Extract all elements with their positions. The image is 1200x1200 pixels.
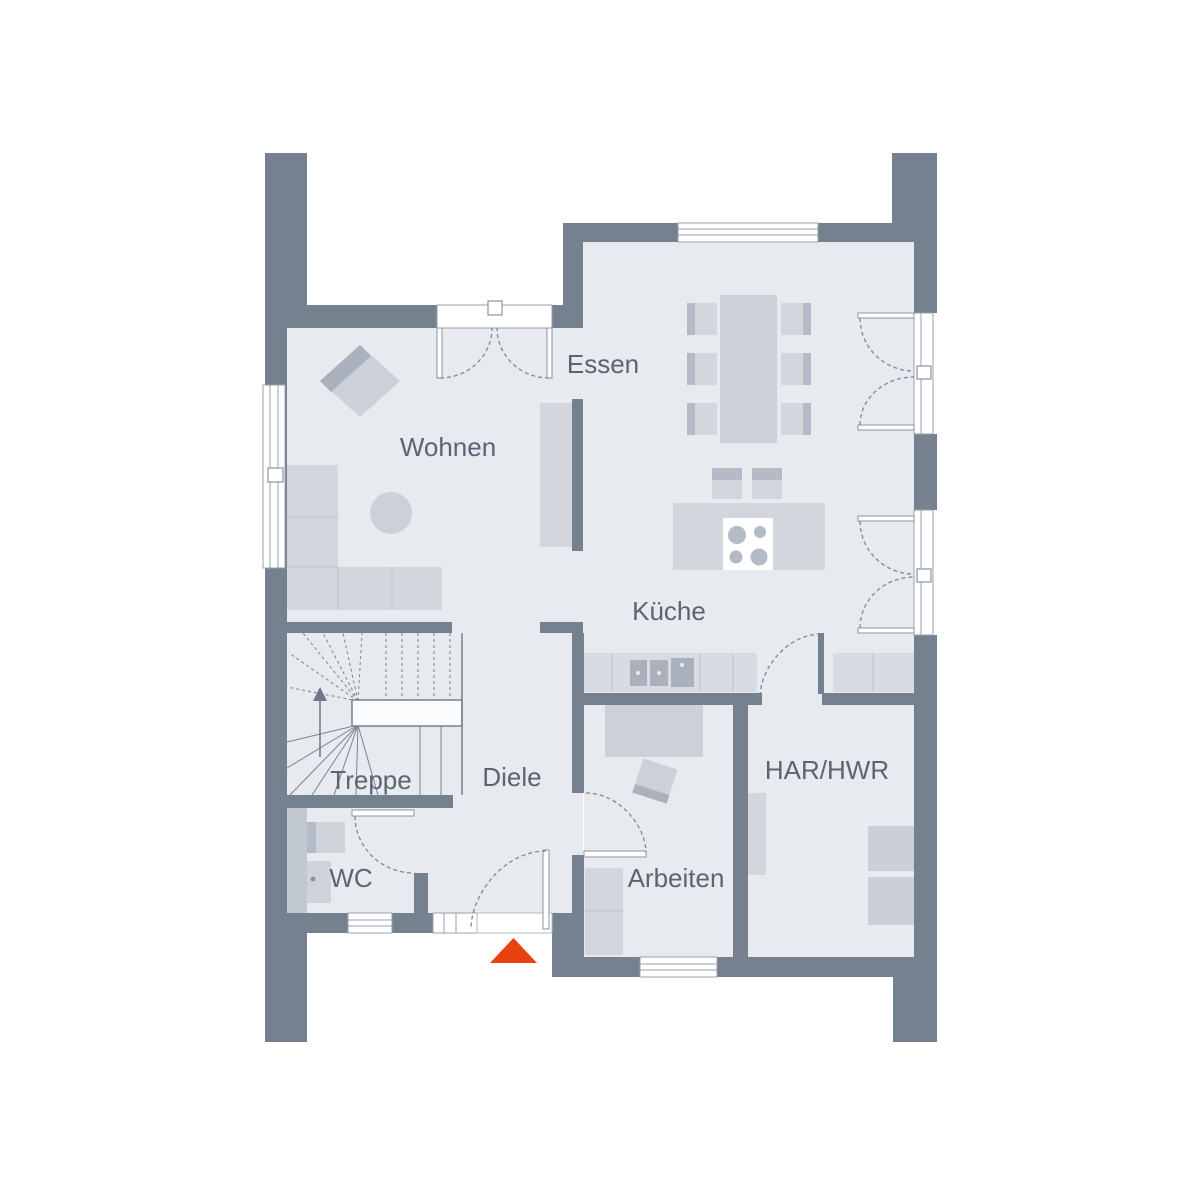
room-label-diele: Diele xyxy=(482,762,541,792)
entrance-marker xyxy=(490,938,537,963)
window-wc-bottom xyxy=(348,913,392,933)
window-dining-top xyxy=(678,223,818,242)
utility-shelf xyxy=(748,793,766,875)
room-label-kueche: Küche xyxy=(632,596,706,626)
window-living-left xyxy=(263,385,285,568)
kitchen-counter xyxy=(584,653,914,692)
kitchen-island xyxy=(673,503,825,570)
room-label-arbeiten: Arbeiten xyxy=(628,863,725,893)
coffee-table xyxy=(370,492,412,534)
room-label-har-hwr: HAR/HWR xyxy=(765,755,889,785)
window-office-bottom xyxy=(640,957,717,977)
office-cabinet xyxy=(585,868,623,955)
sideboard xyxy=(540,403,572,547)
room-label-essen: Essen xyxy=(567,349,639,379)
floorplan-canvas: Wohnen Essen Küche Treppe Diele WC Arbei… xyxy=(0,0,1200,1200)
room-label-wohnen: Wohnen xyxy=(400,432,496,462)
floorplan-drawing: Wohnen Essen Küche Treppe Diele WC Arbei… xyxy=(0,0,1200,1200)
room-label-wc: WC xyxy=(329,863,372,893)
dining-table xyxy=(720,295,777,443)
desk xyxy=(605,705,703,757)
room-label-treppe: Treppe xyxy=(330,765,411,795)
